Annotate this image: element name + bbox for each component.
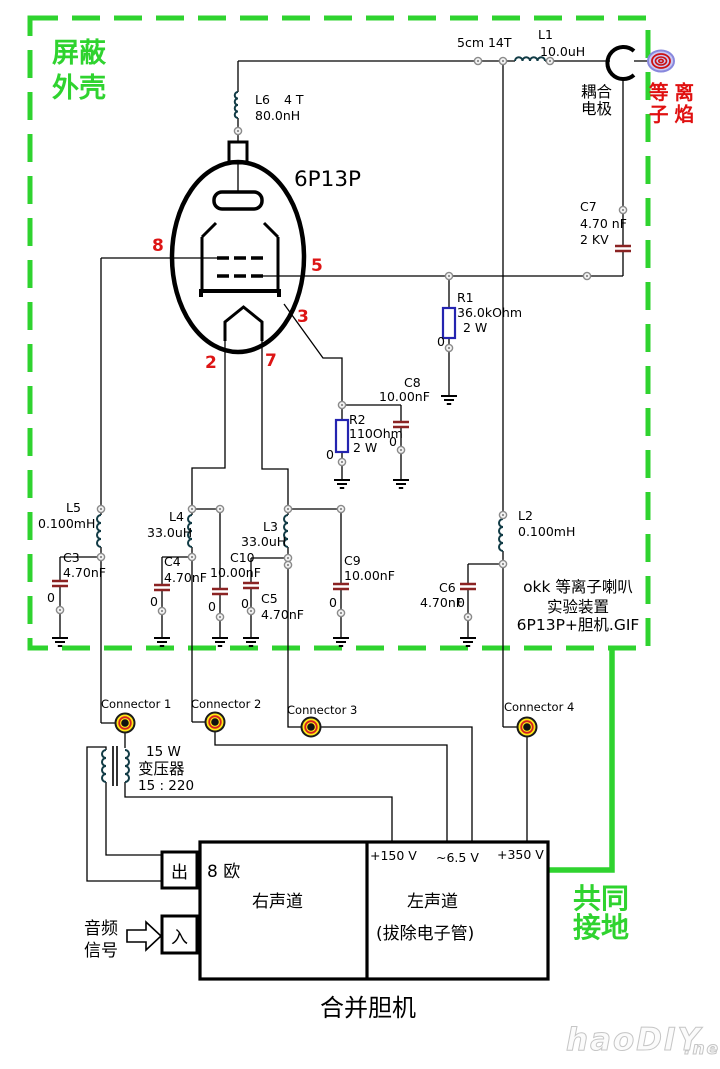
note-line1: okk 等离子喇叭: [523, 578, 633, 596]
plasma-label-line1: 等离: [648, 81, 700, 104]
right-channel-label: 右声道: [252, 892, 303, 912]
r1-value: 36.0kOhm: [457, 305, 522, 320]
net-zero-label: 0: [326, 447, 334, 462]
c4-value: 4.70nF: [164, 570, 207, 585]
connector-4-label: Connector 4: [504, 700, 574, 714]
resistor-r2: [336, 420, 348, 452]
tube-pin2-label: 2: [205, 353, 217, 373]
plasma-label-line2: 子焰: [649, 103, 700, 126]
coupling-electrode-icon: [607, 47, 634, 79]
impedance-label: 8 欧: [207, 862, 240, 882]
shield-label-line1: 屏蔽: [52, 38, 107, 69]
watermark-suffix: .net: [684, 1039, 720, 1059]
audio-signal-arrow-icon: [127, 922, 161, 950]
left-channel-label: 左声道: [407, 892, 458, 912]
audio-signal-label-line1: 音频: [84, 919, 118, 939]
l4-ref: L4: [169, 509, 184, 524]
net-zero-label: 0: [457, 595, 465, 610]
voltage-150v-label: +150 V: [370, 848, 417, 863]
c7-ref: C7: [580, 199, 597, 214]
audio-signal-label-line2: 信号: [84, 941, 118, 961]
net-zero-label: 0: [208, 599, 216, 614]
l6-turns: 4 T: [284, 92, 304, 107]
electrode-label-line1: 耦合: [581, 83, 613, 101]
l4-value: 33.0uH: [147, 525, 192, 540]
out-port-label: 出: [171, 863, 188, 883]
l2-value: 0.100mH: [518, 524, 575, 539]
common-ground-wire: [548, 649, 612, 870]
tube-pin7-label: 7: [265, 351, 277, 371]
l3-value: 33.0uH: [241, 534, 286, 549]
c7-value: 4.70 nF: [580, 216, 627, 231]
connector-2-jack[interactable]: [206, 713, 225, 732]
c5-ref: C5: [261, 591, 278, 606]
net-zero-label: 0: [241, 596, 249, 611]
transformer-power-label: 15 W: [146, 744, 181, 760]
left-channel-note: (拔除电子管): [376, 924, 474, 944]
tube-anode: [214, 192, 262, 209]
connector-3-jack[interactable]: [302, 718, 321, 737]
l6-value: 80.0nH: [255, 108, 300, 123]
plasma-speaker-schematic: 屏蔽 外壳 5cm 14T L1 10.0uH L6 4 T 80.0nH 6P…: [0, 0, 720, 1069]
r1-ref: R1: [457, 290, 474, 305]
tube-heater-filament: [225, 307, 262, 341]
net-zero-label: 0: [329, 595, 337, 610]
connector-4-jack[interactable]: [518, 718, 537, 737]
c9-value: 10.00nF: [344, 568, 395, 583]
net-zero-label: 0: [437, 334, 445, 349]
inductor-coils: [97, 57, 545, 782]
c8-value: 10.00nF: [379, 389, 430, 404]
l5-ref: L5: [66, 500, 81, 515]
c4-ref: C4: [164, 554, 181, 569]
l1-value: 10.0uH: [540, 44, 585, 59]
tube-model-label: 6P13P: [294, 167, 361, 192]
connector-3-label: Connector 3: [287, 703, 357, 717]
voltage-6v5-label: ~6.5 V: [436, 850, 479, 865]
l1-ref: L1: [538, 27, 553, 42]
note-line3: 6P13P+胆机.GIF: [517, 616, 640, 634]
c8-ref: C8: [404, 375, 421, 390]
net-zero-label: 0: [47, 590, 55, 605]
c7-rating: 2 KV: [580, 232, 609, 247]
r2-ref: R2: [349, 412, 366, 427]
tube-grid-dashes: [217, 258, 263, 276]
connector-2-label: Connector 2: [191, 697, 261, 711]
main-coil-label: 5cm 14T: [457, 35, 512, 50]
electrode-label-line2: 电极: [581, 100, 612, 118]
c10-value: 10.00nF: [210, 565, 261, 580]
amp-title-label: 合并胆机: [320, 994, 416, 1022]
r2-power: 2 W: [353, 440, 377, 455]
in-port-label: 入: [171, 928, 188, 948]
c10-ref: C10: [230, 550, 255, 565]
connector-1-jack[interactable]: [116, 714, 135, 733]
net-zero-label: 0: [150, 594, 158, 609]
transformer-core: [113, 746, 117, 786]
l5-value: 0.100mH: [38, 516, 95, 531]
r1-power: 2 W: [463, 320, 487, 335]
tube-pin3-label: 3: [297, 307, 309, 327]
c3-ref: C3: [63, 550, 80, 565]
l3-ref: L3: [263, 519, 278, 534]
l2-ref: L2: [518, 508, 533, 523]
connector-1-label: Connector 1: [101, 697, 171, 711]
note-line2: 实验装置: [547, 598, 609, 616]
tube-pin5-label: 5: [311, 256, 323, 276]
schematic-canvas: 屏蔽 外壳 5cm 14T L1 10.0uH L6 4 T 80.0nH 6P…: [0, 0, 720, 1069]
plasma-flame-icon: [648, 51, 674, 72]
tube-cathode-bar: [201, 291, 279, 297]
watermark-logo: haoDIY: [566, 1022, 704, 1058]
transformer-name-label: 变压器: [138, 760, 185, 778]
shield-enclosure-border: [30, 18, 648, 648]
c3-value: 4.70nF: [63, 565, 106, 580]
common-ground-label-line2: 接地: [573, 911, 629, 944]
transformer-ratio-label: 15 : 220: [138, 778, 194, 794]
l6-ref: L6: [255, 92, 270, 107]
tube-pin8-label: 8: [152, 236, 164, 256]
net-zero-label: 0: [389, 434, 397, 449]
c9-ref: C9: [344, 553, 361, 568]
shield-label-line2: 外壳: [52, 73, 106, 104]
c6-ref: C6: [439, 580, 456, 595]
voltage-350v-label: +350 V: [497, 847, 544, 862]
c5-value: 4.70nF: [261, 607, 304, 622]
